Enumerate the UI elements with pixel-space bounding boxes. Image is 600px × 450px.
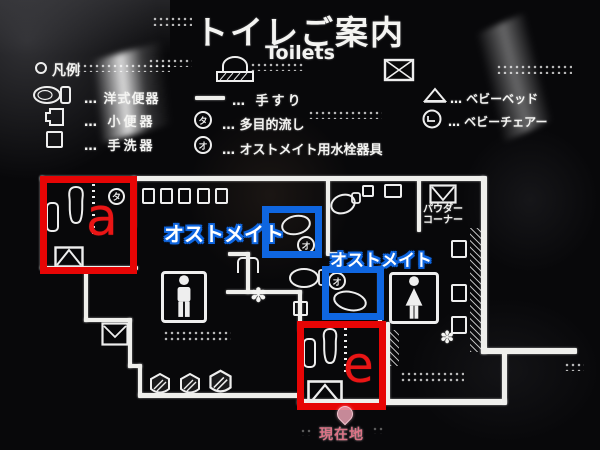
powder-corner-line2: コーナー <box>423 215 463 226</box>
baby-bed-icon <box>101 322 129 346</box>
braille-dots <box>308 110 382 119</box>
multipurpose-sink-icon: ✽ <box>250 283 267 307</box>
urinal-fixture <box>206 368 235 397</box>
powder-corner-label: パウダー コーナー <box>423 204 463 226</box>
tactile-toilet-guide-sign: トイレご案内 Toilets 凡例 … 洋式便器 … 小便器 … 手洗器 … 手… <box>0 0 600 450</box>
woman-pictogram-icon <box>392 275 436 321</box>
multipurpose-sink-icon: ✽ <box>440 328 454 348</box>
urinal-fixture <box>197 188 210 204</box>
urinal-fixture <box>147 372 173 397</box>
urinal-fixture <box>178 188 191 204</box>
wall-hatch-texture <box>470 228 481 352</box>
urinal-fixture <box>177 372 203 397</box>
powder-corner-line1: パウダー <box>423 204 463 215</box>
toilet-fixture <box>328 190 362 220</box>
ostomate-label-1: オストメイト <box>164 218 284 247</box>
sink-fixture <box>237 257 259 273</box>
legend-label: … ベビーチェアー <box>448 113 547 130</box>
wall-segment <box>502 352 507 404</box>
multipurpose-bed-icon <box>214 55 256 85</box>
wall-segment <box>84 268 88 322</box>
ostomate-label-2: オストメイト <box>330 246 432 271</box>
baby-bed-icon <box>429 184 457 204</box>
wall-segment <box>481 348 577 354</box>
man-pictogram-icon <box>164 274 204 320</box>
wall-segment <box>417 180 421 232</box>
annotation-letter-a: a <box>86 192 118 244</box>
circle-o-icon: オ <box>194 136 212 154</box>
urinal-icon <box>44 106 66 128</box>
sign-title-english: Toilets <box>0 42 600 64</box>
baby-bed-icon <box>423 86 447 104</box>
mens-room-sign <box>161 271 207 323</box>
braille-dots <box>250 62 304 71</box>
legend-bullet-icon <box>35 62 47 74</box>
washbasin-fixture <box>362 185 374 197</box>
baby-chair-icon <box>421 108 443 130</box>
washbasin-fixture <box>293 301 308 316</box>
braille-dots <box>300 428 312 436</box>
urinal-fixture <box>142 188 155 204</box>
braille-dots <box>152 16 192 26</box>
legend-label: … 手洗器 <box>84 135 156 154</box>
washbasin-fixture <box>384 184 402 198</box>
braille-dots <box>163 330 231 341</box>
current-location-label: 現在地 <box>319 424 364 444</box>
legend-label: … 手すり <box>232 90 304 109</box>
annotation-box-ostomate-2 <box>322 266 384 320</box>
wall-hatch-texture <box>390 330 399 366</box>
washbasin-fixture <box>451 284 467 302</box>
legend-label: … オストメイト用水栓器具 <box>222 139 383 158</box>
braille-dots <box>372 426 384 434</box>
western-toilet-icon <box>30 83 78 107</box>
braille-dots <box>76 63 170 72</box>
legend-label: … ベビーベッド <box>450 90 538 107</box>
washbasin-fixture <box>451 240 467 258</box>
washbasin-icon <box>46 131 63 148</box>
baby-bed-icon <box>383 58 415 82</box>
circle-ta-icon: タ <box>194 111 212 129</box>
legend-label: … 洋式便器 <box>84 88 160 107</box>
legend-heading: 凡例 <box>52 60 80 80</box>
annotation-letter-e: e <box>343 340 374 390</box>
legend-label: … 多目的流し <box>222 114 305 133</box>
urinal-fixture <box>160 188 173 204</box>
legend-label: … 小便器 <box>84 111 156 130</box>
womens-room-sign <box>389 272 439 324</box>
braille-dots <box>496 64 572 74</box>
braille-dots <box>564 362 584 371</box>
handrail-icon <box>195 96 225 100</box>
wall-segment <box>481 176 487 354</box>
braille-dots <box>400 371 464 383</box>
urinal-fixture <box>215 188 228 204</box>
